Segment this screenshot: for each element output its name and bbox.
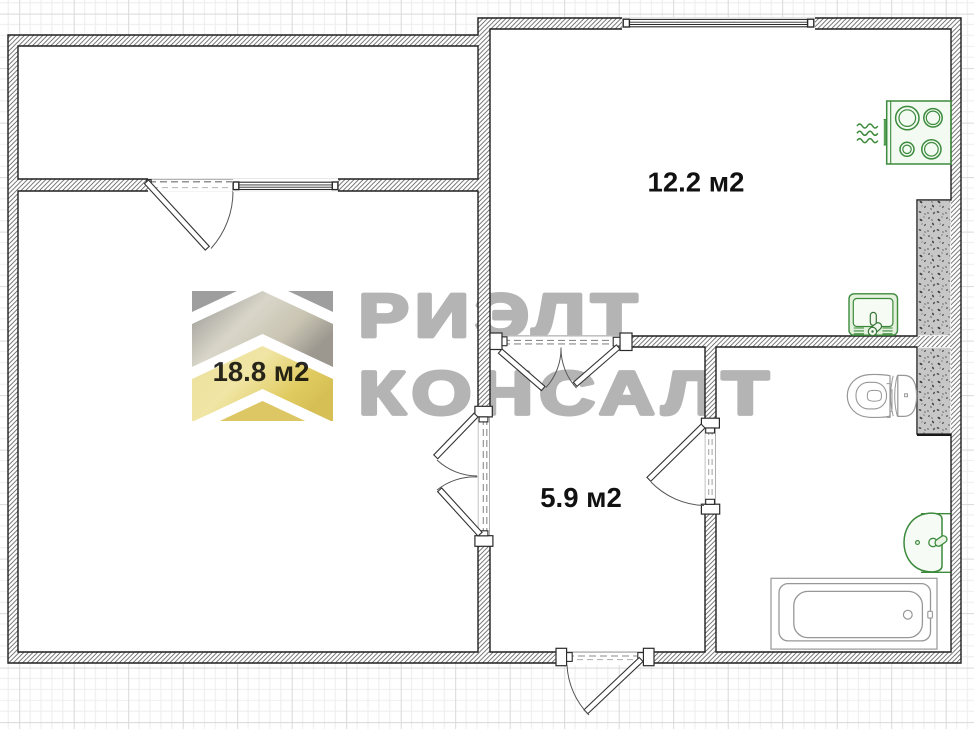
svg-text:18.8 м2: 18.8 м2 (213, 356, 310, 387)
svg-text:12.2 м2: 12.2 м2 (648, 167, 745, 198)
svg-text:5.9 м2: 5.9 м2 (540, 482, 622, 513)
